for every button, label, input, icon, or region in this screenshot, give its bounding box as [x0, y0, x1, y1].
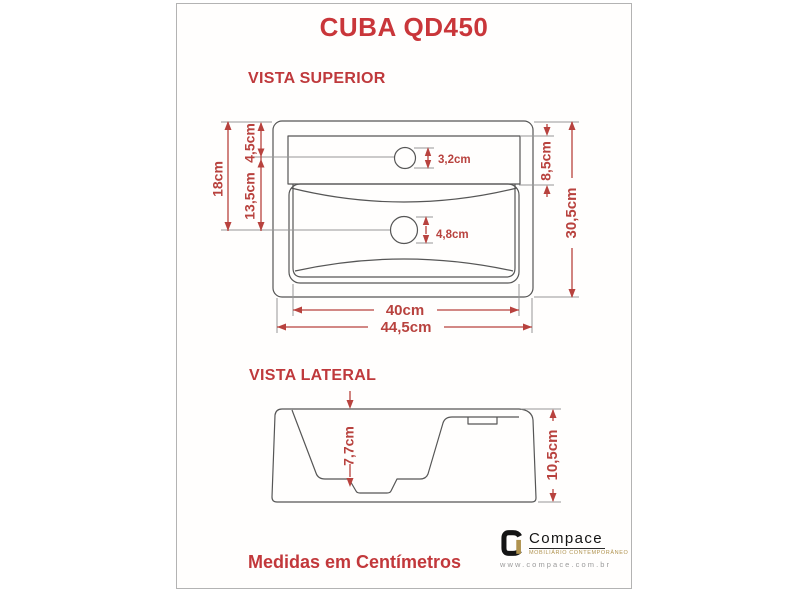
- side-profile-basin: [292, 410, 519, 493]
- dim-text-basin-depth: 7,7cm: [341, 426, 357, 466]
- side-faucet-recess: [468, 417, 497, 424]
- faucet-hole: [395, 148, 416, 169]
- compace-logo-icon: [500, 530, 525, 557]
- sink-deck: [288, 136, 520, 184]
- dim-text-faucet-to-drain: 13,5cm: [242, 172, 258, 219]
- basin-top-curve: [291, 188, 517, 202]
- dim-text-faucet-offset: 4,5cm: [242, 123, 258, 163]
- dim-text-total-height-left: 18cm: [210, 161, 226, 197]
- brand-website: www.compace.com.br: [500, 560, 620, 569]
- brand-name: Compace: [529, 530, 605, 549]
- basin-outline: [289, 184, 519, 283]
- dim-text-overall-height: 10,5cm: [544, 430, 561, 481]
- brand-logo: Compace MOBILIÁRIO CONTEMPORÂNEO www.com…: [500, 530, 620, 569]
- dim-text-drain-hole: 4,8cm: [436, 229, 469, 241]
- dim-text-inner-width: 40cm: [386, 302, 424, 319]
- top-view-drawing: 18cm 4,5cm 13,5cm 8,5cm 30,5cm 40cm 44,5…: [210, 121, 580, 336]
- dim-text-deck-depth: 8,5cm: [538, 141, 554, 181]
- side-view-drawing: 7,7cm 10,5cm: [272, 391, 561, 502]
- drain-hole: [391, 217, 418, 244]
- basin-bottom-curve: [295, 259, 513, 271]
- technical-drawing: 18cm 4,5cm 13,5cm 8,5cm 30,5cm 40cm 44,5…: [0, 0, 810, 590]
- dim-text-faucet-hole: 3,2cm: [438, 154, 471, 166]
- dim-text-overall-width: 44,5cm: [381, 319, 432, 336]
- brand-tagline: MOBILIÁRIO CONTEMPORÂNEO: [529, 550, 628, 556]
- dim-text-overall-depth: 30,5cm: [563, 188, 580, 239]
- spec-sheet: CUBA QD450 VISTA SUPERIOR VISTA LATERAL …: [0, 0, 810, 590]
